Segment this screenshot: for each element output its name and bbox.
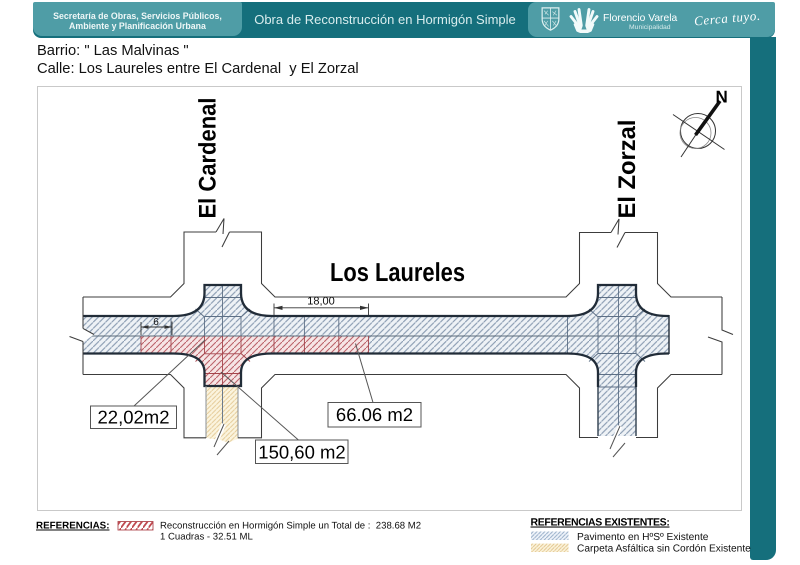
svg-text:El Zorzal: El Zorzal [614,120,641,219]
svg-text:150,60 m2: 150,60 m2 [258,442,345,463]
svg-text:18,00: 18,00 [307,296,335,308]
svg-text:Carpeta Asfáltica sin Cordón E: Carpeta Asfáltica sin Cordón Existente [577,544,751,555]
svg-text:Los Laureles: Los Laureles [330,257,465,287]
svg-text:66.06 m2: 66.06 m2 [336,404,413,425]
svg-text:Pavimento en HºSº Existente: Pavimento en HºSº Existente [577,532,709,543]
svg-text:REFERENCIAS:: REFERENCIAS: [36,521,109,532]
svg-text:El Cardenal: El Cardenal [195,98,222,219]
svg-text:6: 6 [153,317,159,328]
svg-text:REFERENCIAS EXISTENTES:: REFERENCIAS EXISTENTES: [531,517,670,529]
svg-text:Reconstrucción en Hormigón Sim: Reconstrucción en Hormigón Simple un Tot… [160,521,421,532]
svg-text:N: N [716,88,728,107]
svg-text:1 Cuadras - 32.51 ML: 1 Cuadras - 32.51 ML [160,532,253,543]
svg-text:22,02m2: 22,02m2 [98,407,170,428]
